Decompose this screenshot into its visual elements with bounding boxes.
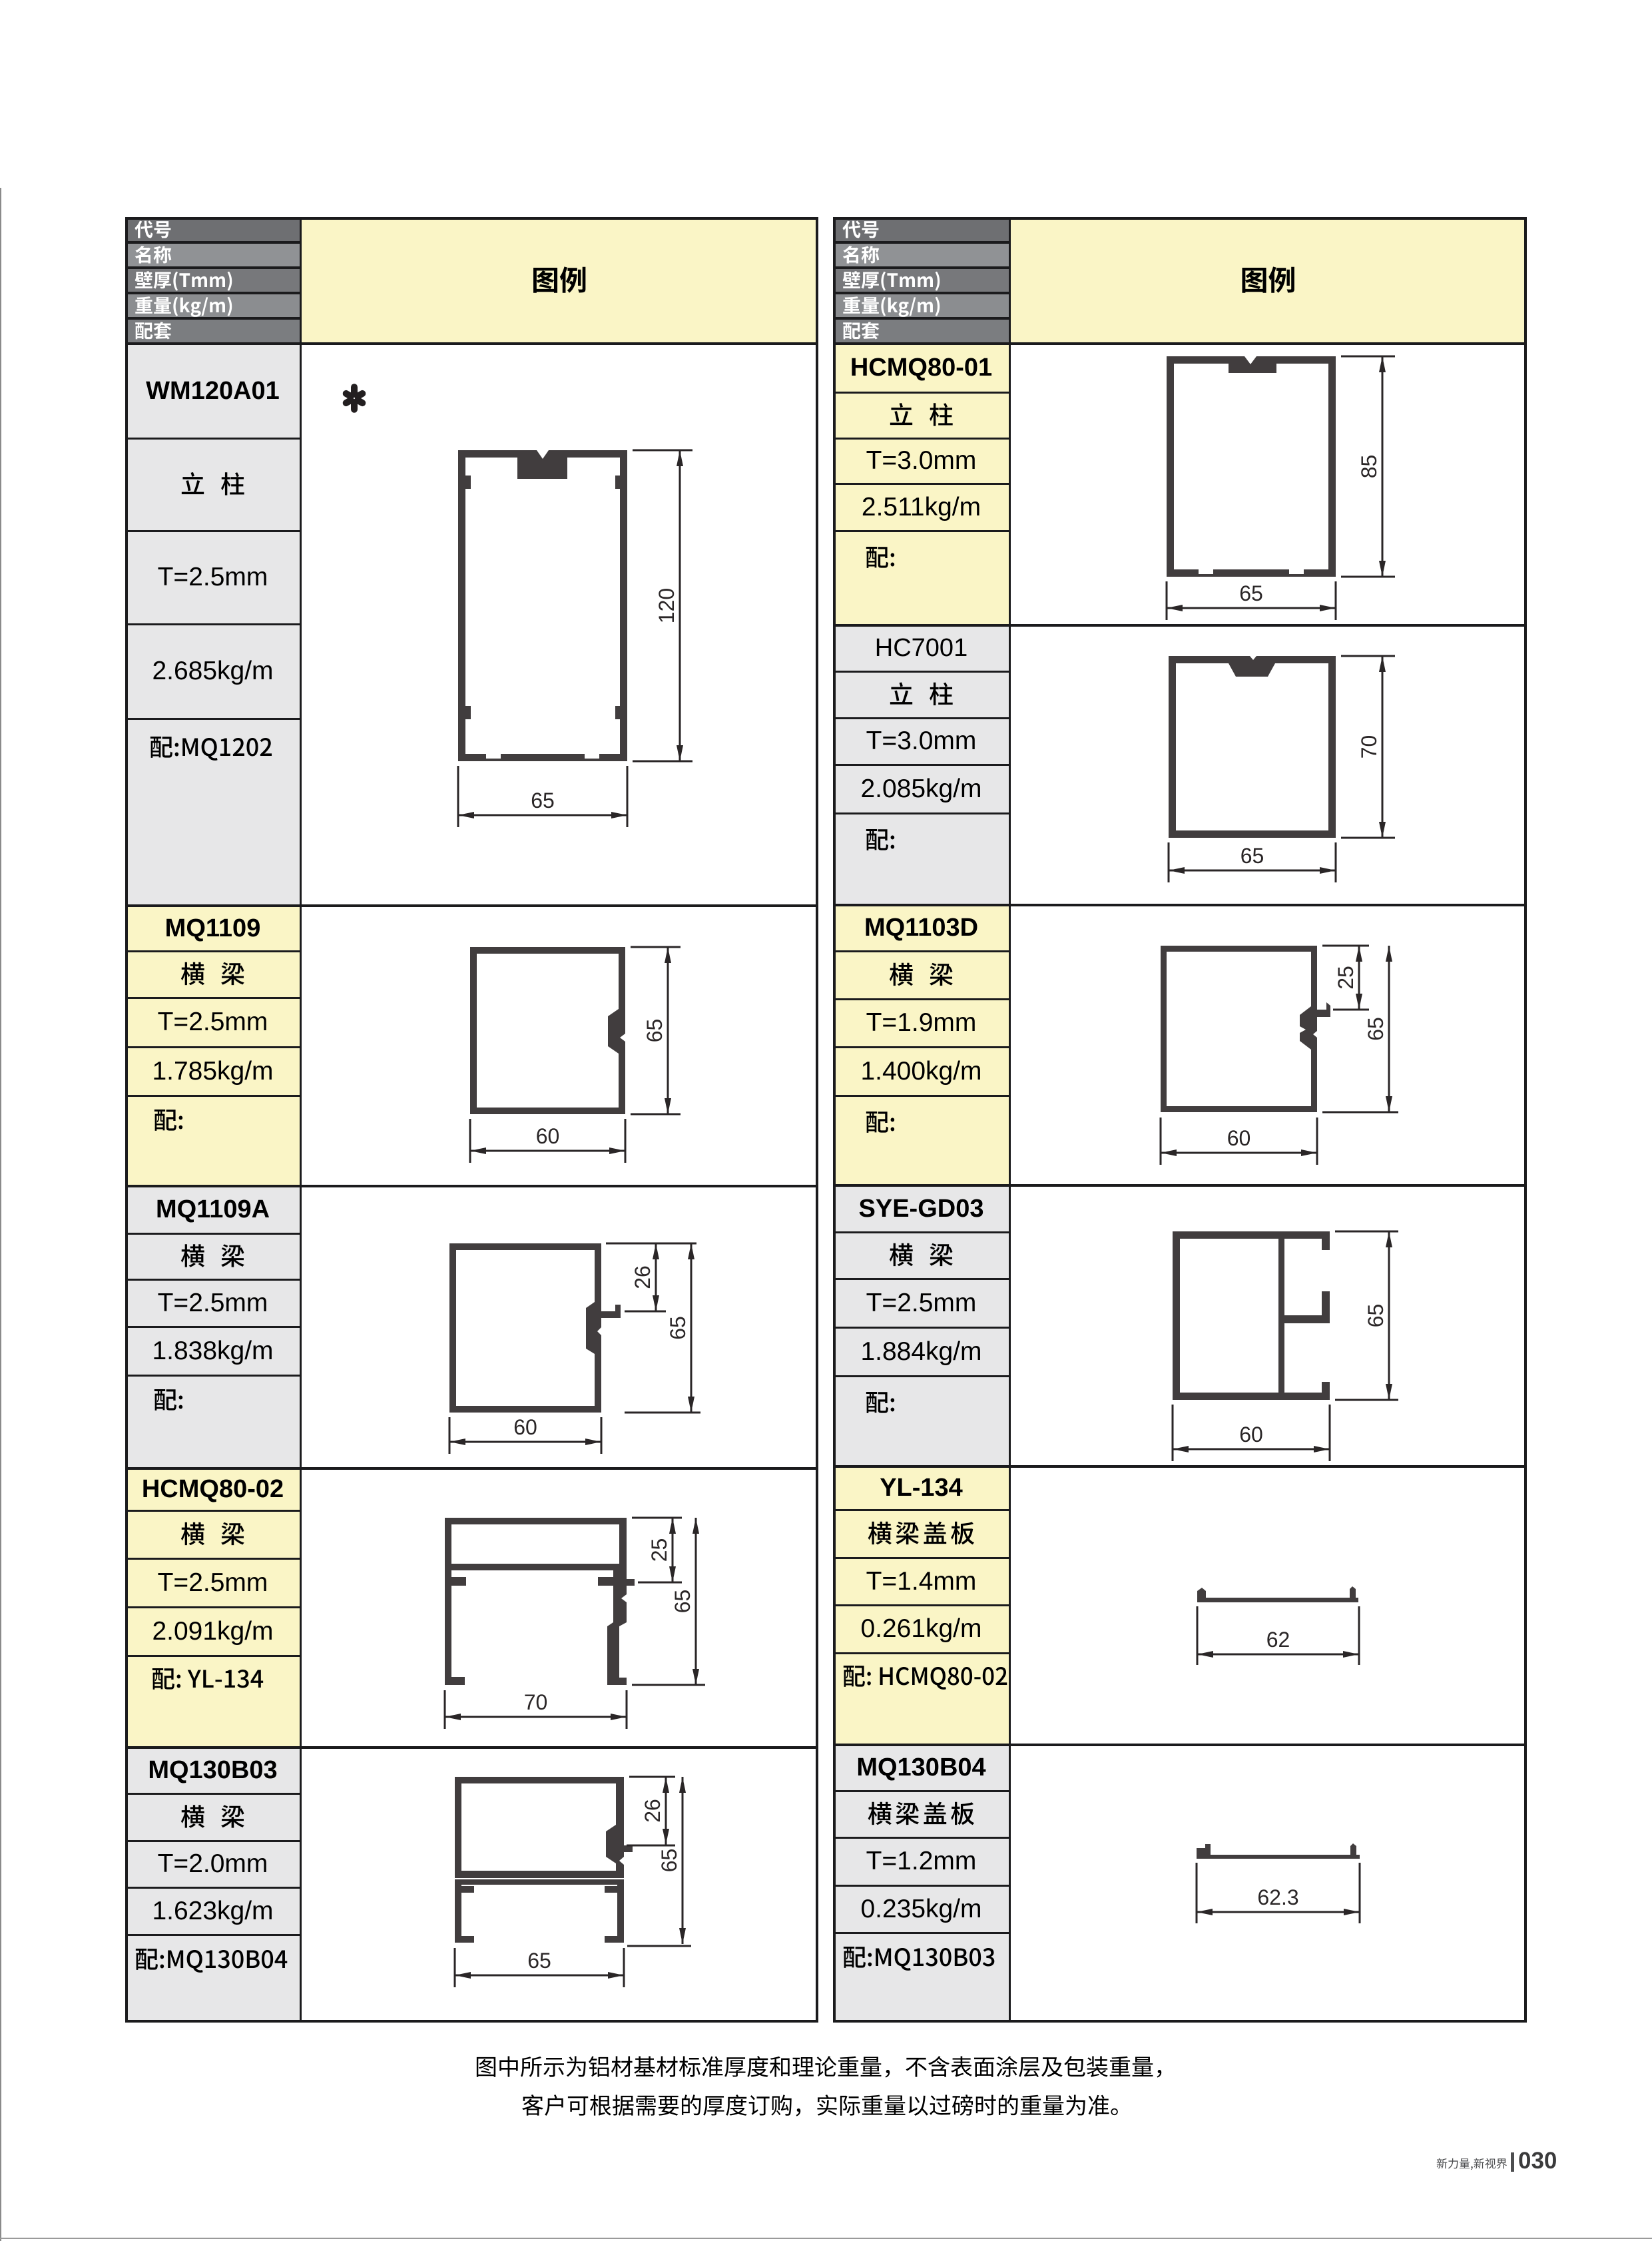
svg-text:26: 26 [631,1265,655,1289]
svg-text:65: 65 [527,1949,551,1973]
svg-text:60: 60 [536,1124,560,1148]
svg-text:65: 65 [1240,844,1264,868]
svg-text:65: 65 [1364,1017,1388,1041]
svg-text:65: 65 [671,1590,694,1614]
svg-text:62.3: 62.3 [1257,1885,1298,1909]
svg-text:85: 85 [1357,455,1381,479]
svg-text:60: 60 [1227,1126,1251,1150]
svg-text:62: 62 [1266,1628,1290,1652]
svg-text:65: 65 [1364,1304,1388,1328]
svg-text:60: 60 [513,1415,537,1439]
svg-text:65: 65 [666,1316,690,1340]
svg-text:25: 25 [647,1538,671,1562]
svg-text:65: 65 [657,1849,681,1873]
svg-text:60: 60 [1239,1423,1263,1446]
svg-text:26: 26 [641,1799,665,1823]
svg-text:120: 120 [655,588,679,623]
svg-text:70: 70 [524,1690,548,1714]
svg-text:25: 25 [1334,966,1358,990]
svg-text:65: 65 [1239,581,1263,605]
svg-text:65: 65 [531,789,555,812]
svg-text:65: 65 [643,1019,667,1043]
svg-text:70: 70 [1357,735,1381,759]
